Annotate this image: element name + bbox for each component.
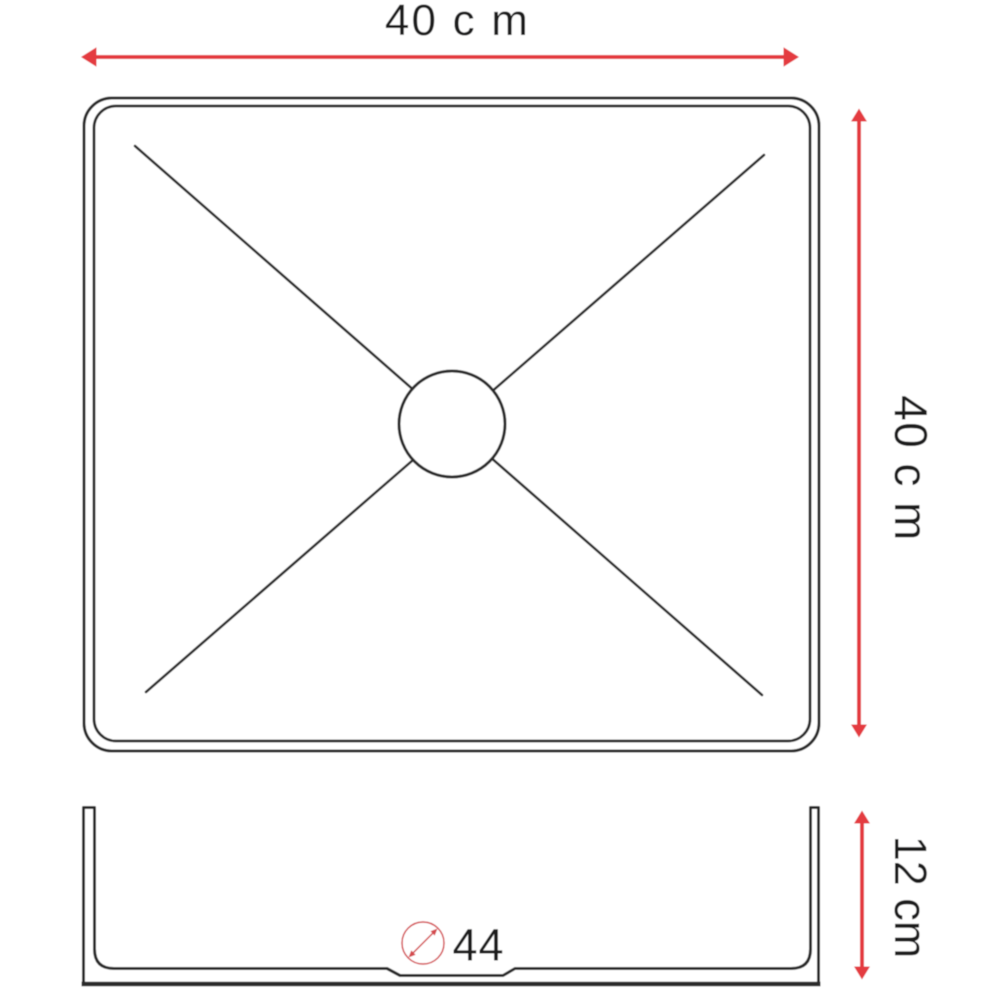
svg-text:40 c m: 40 c m — [385, 0, 530, 45]
svg-text:40 c m: 40 c m — [885, 395, 937, 541]
svg-text:44: 44 — [452, 920, 504, 971]
svg-text:12 cm: 12 cm — [885, 836, 936, 959]
